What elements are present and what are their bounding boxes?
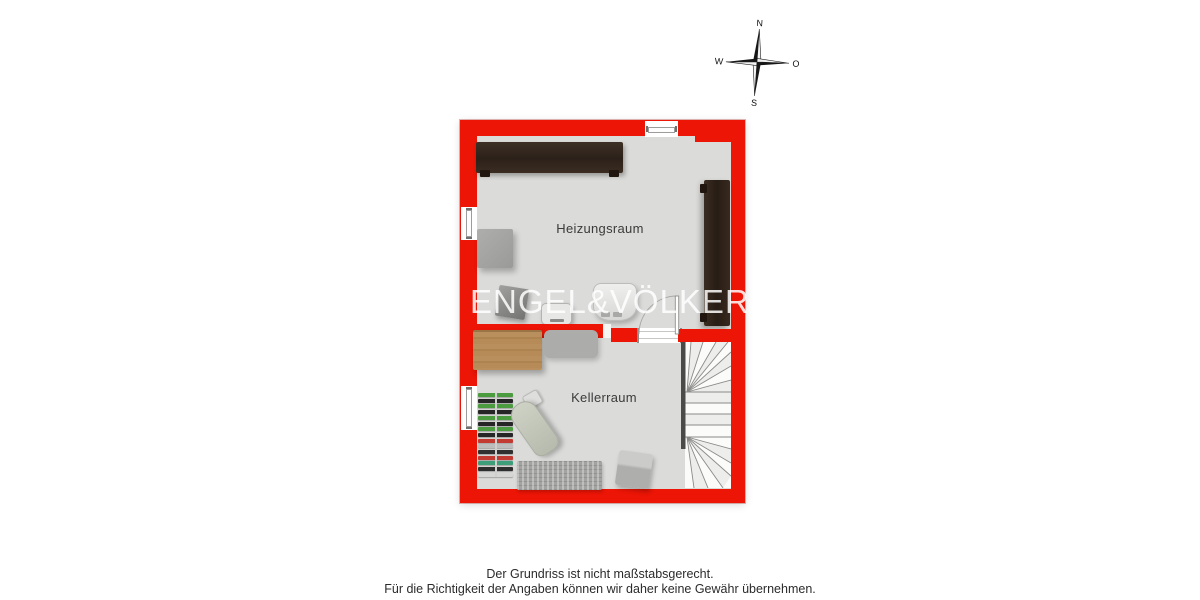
appliance (477, 229, 513, 268)
brand-watermark: ENGEL&VÖLKERS (470, 283, 773, 321)
room-label-heizungsraum: Heizungsraum (520, 221, 680, 236)
staircase (681, 342, 731, 488)
compass-rose: N S W O (712, 16, 802, 108)
textured-rug (517, 461, 602, 490)
room-label-kellerraum: Kellerraum (524, 390, 684, 405)
rack-spine (495, 393, 497, 477)
compass-label-s: S (751, 98, 758, 108)
stair-stringer (681, 342, 686, 449)
compass-label-o: O (792, 58, 800, 68)
workbench (476, 142, 623, 173)
gray-mat (544, 330, 598, 358)
wooden-table (473, 330, 542, 370)
floorplan-page: N S W O Heizungsraum (0, 0, 1200, 600)
wall-step (695, 136, 731, 142)
drying-rack (478, 393, 513, 477)
window (461, 207, 477, 240)
compass-label-n: N (756, 18, 763, 28)
wall-joint (603, 324, 611, 338)
disclaimer-line2: Für die Richtigkeit der Angaben können w… (0, 582, 1200, 597)
disclaimer: Der Grundriss ist nicht maßstabsgerecht.… (0, 567, 1200, 597)
storage-box-gray (615, 450, 654, 489)
compass-label-w: W (714, 56, 724, 67)
disclaimer-line1: Der Grundriss ist nicht maßstabsgerecht. (0, 567, 1200, 582)
window (645, 121, 678, 137)
window (461, 386, 477, 430)
